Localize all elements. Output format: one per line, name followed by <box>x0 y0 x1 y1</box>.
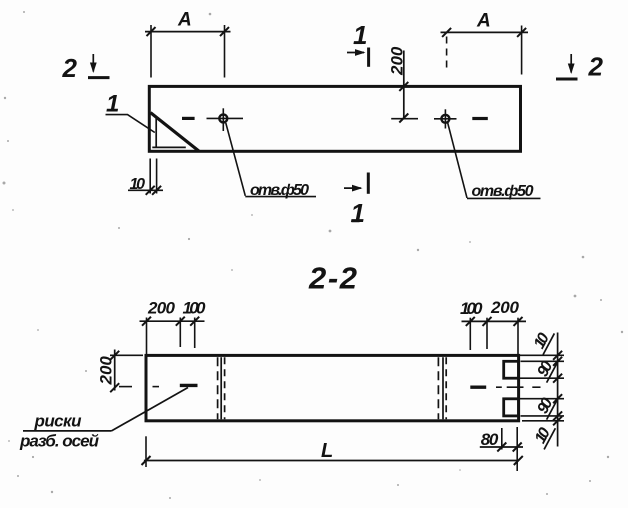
svg-text:80: 80 <box>481 430 499 449</box>
svg-text:100: 100 <box>460 299 483 318</box>
svg-text:разб. осей: разб. осей <box>19 432 100 451</box>
svg-text:200: 200 <box>388 46 407 76</box>
svg-text:2: 2 <box>62 53 78 83</box>
svg-text:L: L <box>321 440 333 462</box>
svg-text:A: A <box>476 11 491 32</box>
svg-text:1: 1 <box>106 91 119 118</box>
svg-text:200: 200 <box>490 298 520 317</box>
svg-text:1: 1 <box>353 20 367 50</box>
svg-text:A: A <box>177 10 192 31</box>
svg-text:риски: риски <box>34 412 83 431</box>
svg-text:2 - 2: 2 - 2 <box>308 261 357 296</box>
svg-text:отв.ф50: отв.ф50 <box>250 182 309 199</box>
svg-text:100: 100 <box>183 299 207 318</box>
svg-text:200: 200 <box>147 299 176 318</box>
svg-text:200: 200 <box>97 356 116 386</box>
svg-text:10: 10 <box>130 176 146 193</box>
svg-text:отв.ф50: отв.ф50 <box>472 183 534 200</box>
svg-text:1: 1 <box>351 198 365 228</box>
svg-text:2: 2 <box>588 52 604 82</box>
